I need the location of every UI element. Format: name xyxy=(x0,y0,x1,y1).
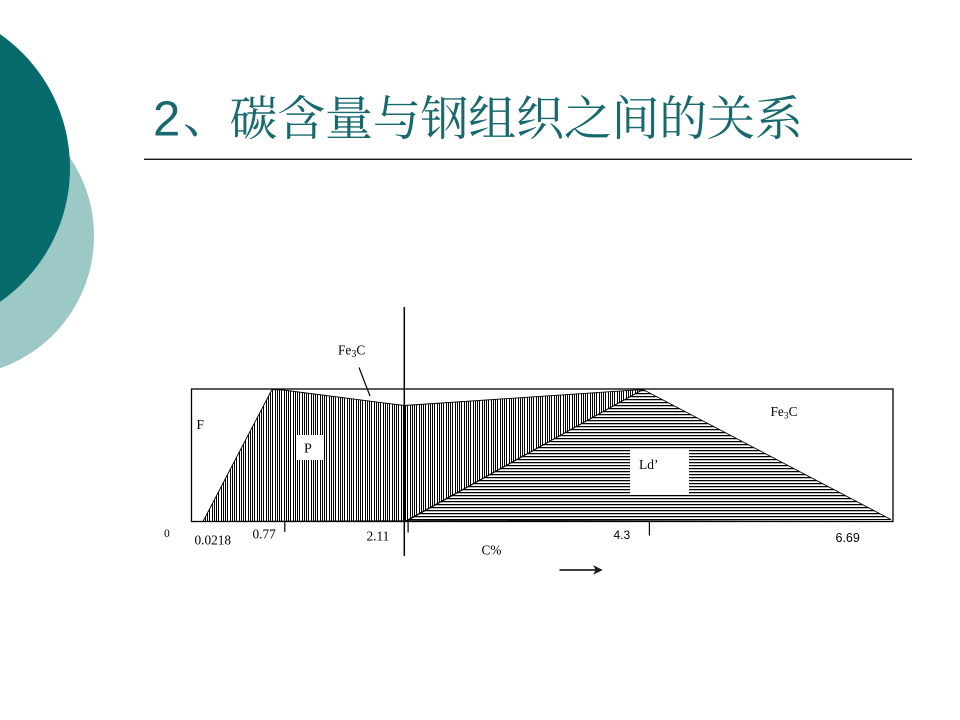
svg-text:P: P xyxy=(304,442,312,457)
svg-text:0: 0 xyxy=(164,528,170,540)
svg-text:2.11: 2.11 xyxy=(367,529,390,544)
svg-text:6.69: 6.69 xyxy=(836,531,860,545)
svg-text:4.3: 4.3 xyxy=(614,528,631,542)
svg-text:C%: C% xyxy=(482,543,502,558)
svg-text:0.0218: 0.0218 xyxy=(195,533,232,548)
svg-text:0.77: 0.77 xyxy=(253,527,277,542)
svg-text:Ld’: Ld’ xyxy=(639,457,659,472)
svg-text:2: 2 xyxy=(153,92,180,146)
svg-text:F: F xyxy=(197,417,204,432)
